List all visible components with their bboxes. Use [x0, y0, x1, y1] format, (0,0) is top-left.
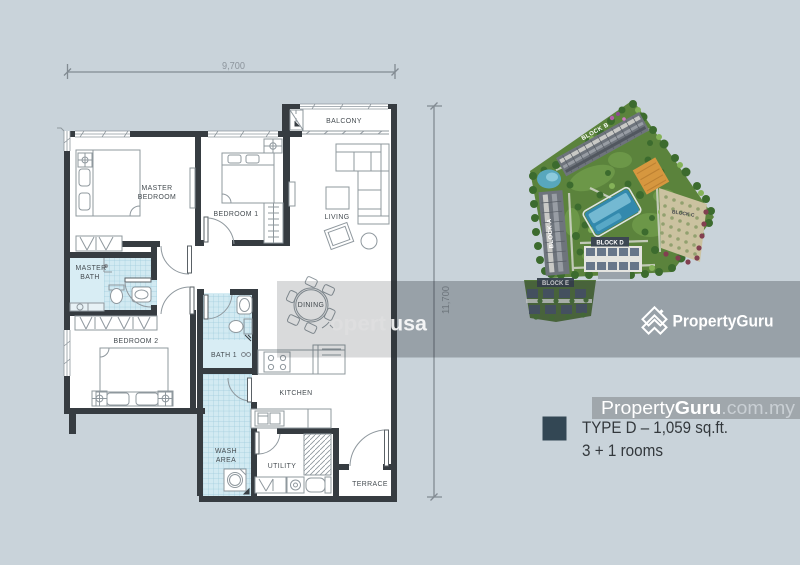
svg-text:TERRACE: TERRACE: [352, 481, 388, 488]
svg-text:KITCHEN: KITCHEN: [279, 390, 312, 397]
svg-text:BEDROOM 1: BEDROOM 1: [214, 211, 259, 218]
svg-text:TYPE D – 1,059 sq.ft.: TYPE D – 1,059 sq.ft.: [582, 418, 728, 437]
svg-text:UTILITY: UTILITY: [268, 463, 296, 470]
svg-text:BATH 1: BATH 1: [211, 352, 237, 359]
svg-text:BEDROOM: BEDROOM: [138, 194, 176, 201]
svg-text:usa: usa: [390, 312, 428, 336]
svg-text:LIVING: LIVING: [325, 214, 350, 221]
svg-text:9,700: 9,700: [222, 61, 245, 72]
svg-text:MASTER: MASTER: [75, 265, 106, 272]
svg-text:PropertyGuru.com.my: PropertyGuru.com.my: [601, 398, 795, 418]
svg-text:BATH: BATH: [80, 274, 99, 281]
svg-text:MASTER: MASTER: [141, 185, 172, 192]
svg-text:opert: opert: [330, 312, 386, 336]
svg-text:BLOCK D: BLOCK D: [596, 241, 624, 247]
svg-text:BALCONY: BALCONY: [326, 118, 362, 125]
svg-text:PropertyGuru: PropertyGuru: [673, 313, 774, 331]
svg-text:WASH: WASH: [215, 448, 237, 455]
svg-text:3 + 1 rooms: 3 + 1 rooms: [582, 441, 663, 460]
svg-text:BEDROOM 2: BEDROOM 2: [114, 338, 159, 345]
svg-text:AREA: AREA: [216, 457, 236, 464]
